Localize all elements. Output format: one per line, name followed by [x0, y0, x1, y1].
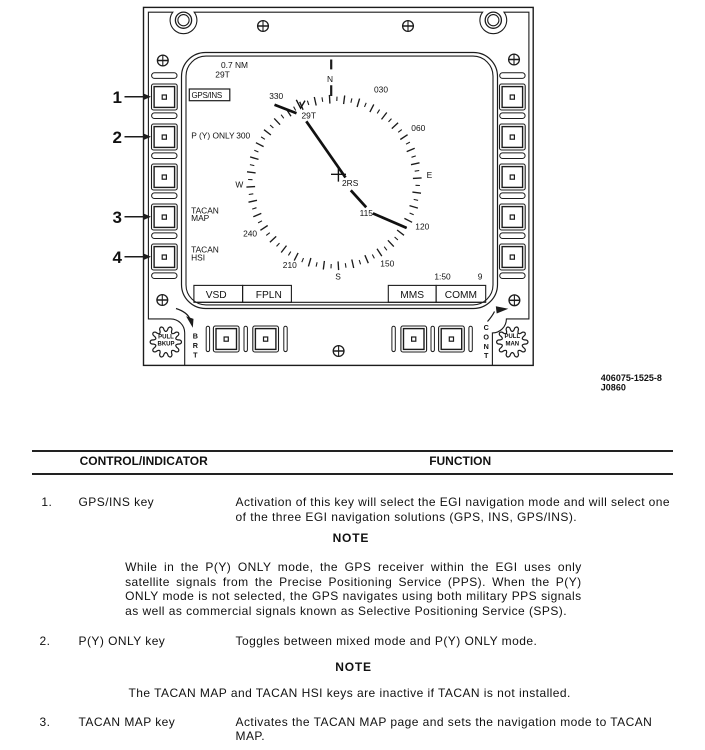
svg-text:2RS: 2RS [342, 178, 359, 188]
svg-text:FPLN: FPLN [256, 290, 282, 301]
svg-text:1:50: 1:50 [434, 272, 451, 282]
svg-text:MAP: MAP [191, 213, 210, 223]
svg-text:E: E [427, 170, 433, 180]
svg-text:030: 030 [374, 85, 388, 95]
svg-text:060: 060 [411, 123, 425, 133]
svg-text:GPS/INS: GPS/INS [192, 91, 222, 100]
svg-text:29T: 29T [302, 111, 316, 121]
svg-text:PULL: PULL [504, 334, 520, 340]
svg-text:120: 120 [415, 222, 429, 232]
svg-text:BKUP: BKUP [157, 341, 174, 347]
svg-text:R: R [193, 341, 199, 350]
svg-text:VSD: VSD [206, 290, 227, 301]
svg-text:O: O [483, 333, 489, 342]
svg-text:150: 150 [380, 259, 394, 269]
svg-text:4: 4 [113, 248, 123, 267]
svg-text:MAN: MAN [505, 341, 519, 347]
svg-text:29T: 29T [215, 70, 229, 80]
svg-text:210: 210 [283, 260, 297, 270]
svg-text:B: B [193, 332, 198, 341]
svg-text:115: 115 [360, 208, 374, 218]
svg-text:406075-1525-8: 406075-1525-8 [601, 373, 662, 383]
svg-text:2: 2 [113, 128, 122, 147]
svg-text:COMM: COMM [445, 290, 477, 301]
svg-text:P (Y) ONLY: P (Y) ONLY [191, 131, 235, 141]
svg-text:J0860: J0860 [601, 382, 626, 392]
svg-text:9: 9 [478, 272, 483, 282]
svg-text:N: N [484, 342, 489, 351]
svg-text:300: 300 [236, 131, 250, 141]
svg-text:C: C [484, 323, 489, 332]
svg-text:3: 3 [113, 208, 122, 227]
svg-text:S: S [335, 272, 341, 282]
svg-text:1: 1 [113, 88, 122, 107]
svg-text:W: W [235, 180, 243, 190]
svg-text:T: T [193, 350, 198, 359]
svg-text:N: N [327, 74, 333, 84]
svg-text:330: 330 [269, 91, 283, 101]
svg-text:PULL: PULL [158, 335, 174, 341]
svg-text:HSI: HSI [191, 253, 205, 263]
svg-text:T: T [484, 351, 489, 360]
svg-text:MMS: MMS [400, 290, 424, 301]
svg-text:240: 240 [243, 229, 257, 239]
